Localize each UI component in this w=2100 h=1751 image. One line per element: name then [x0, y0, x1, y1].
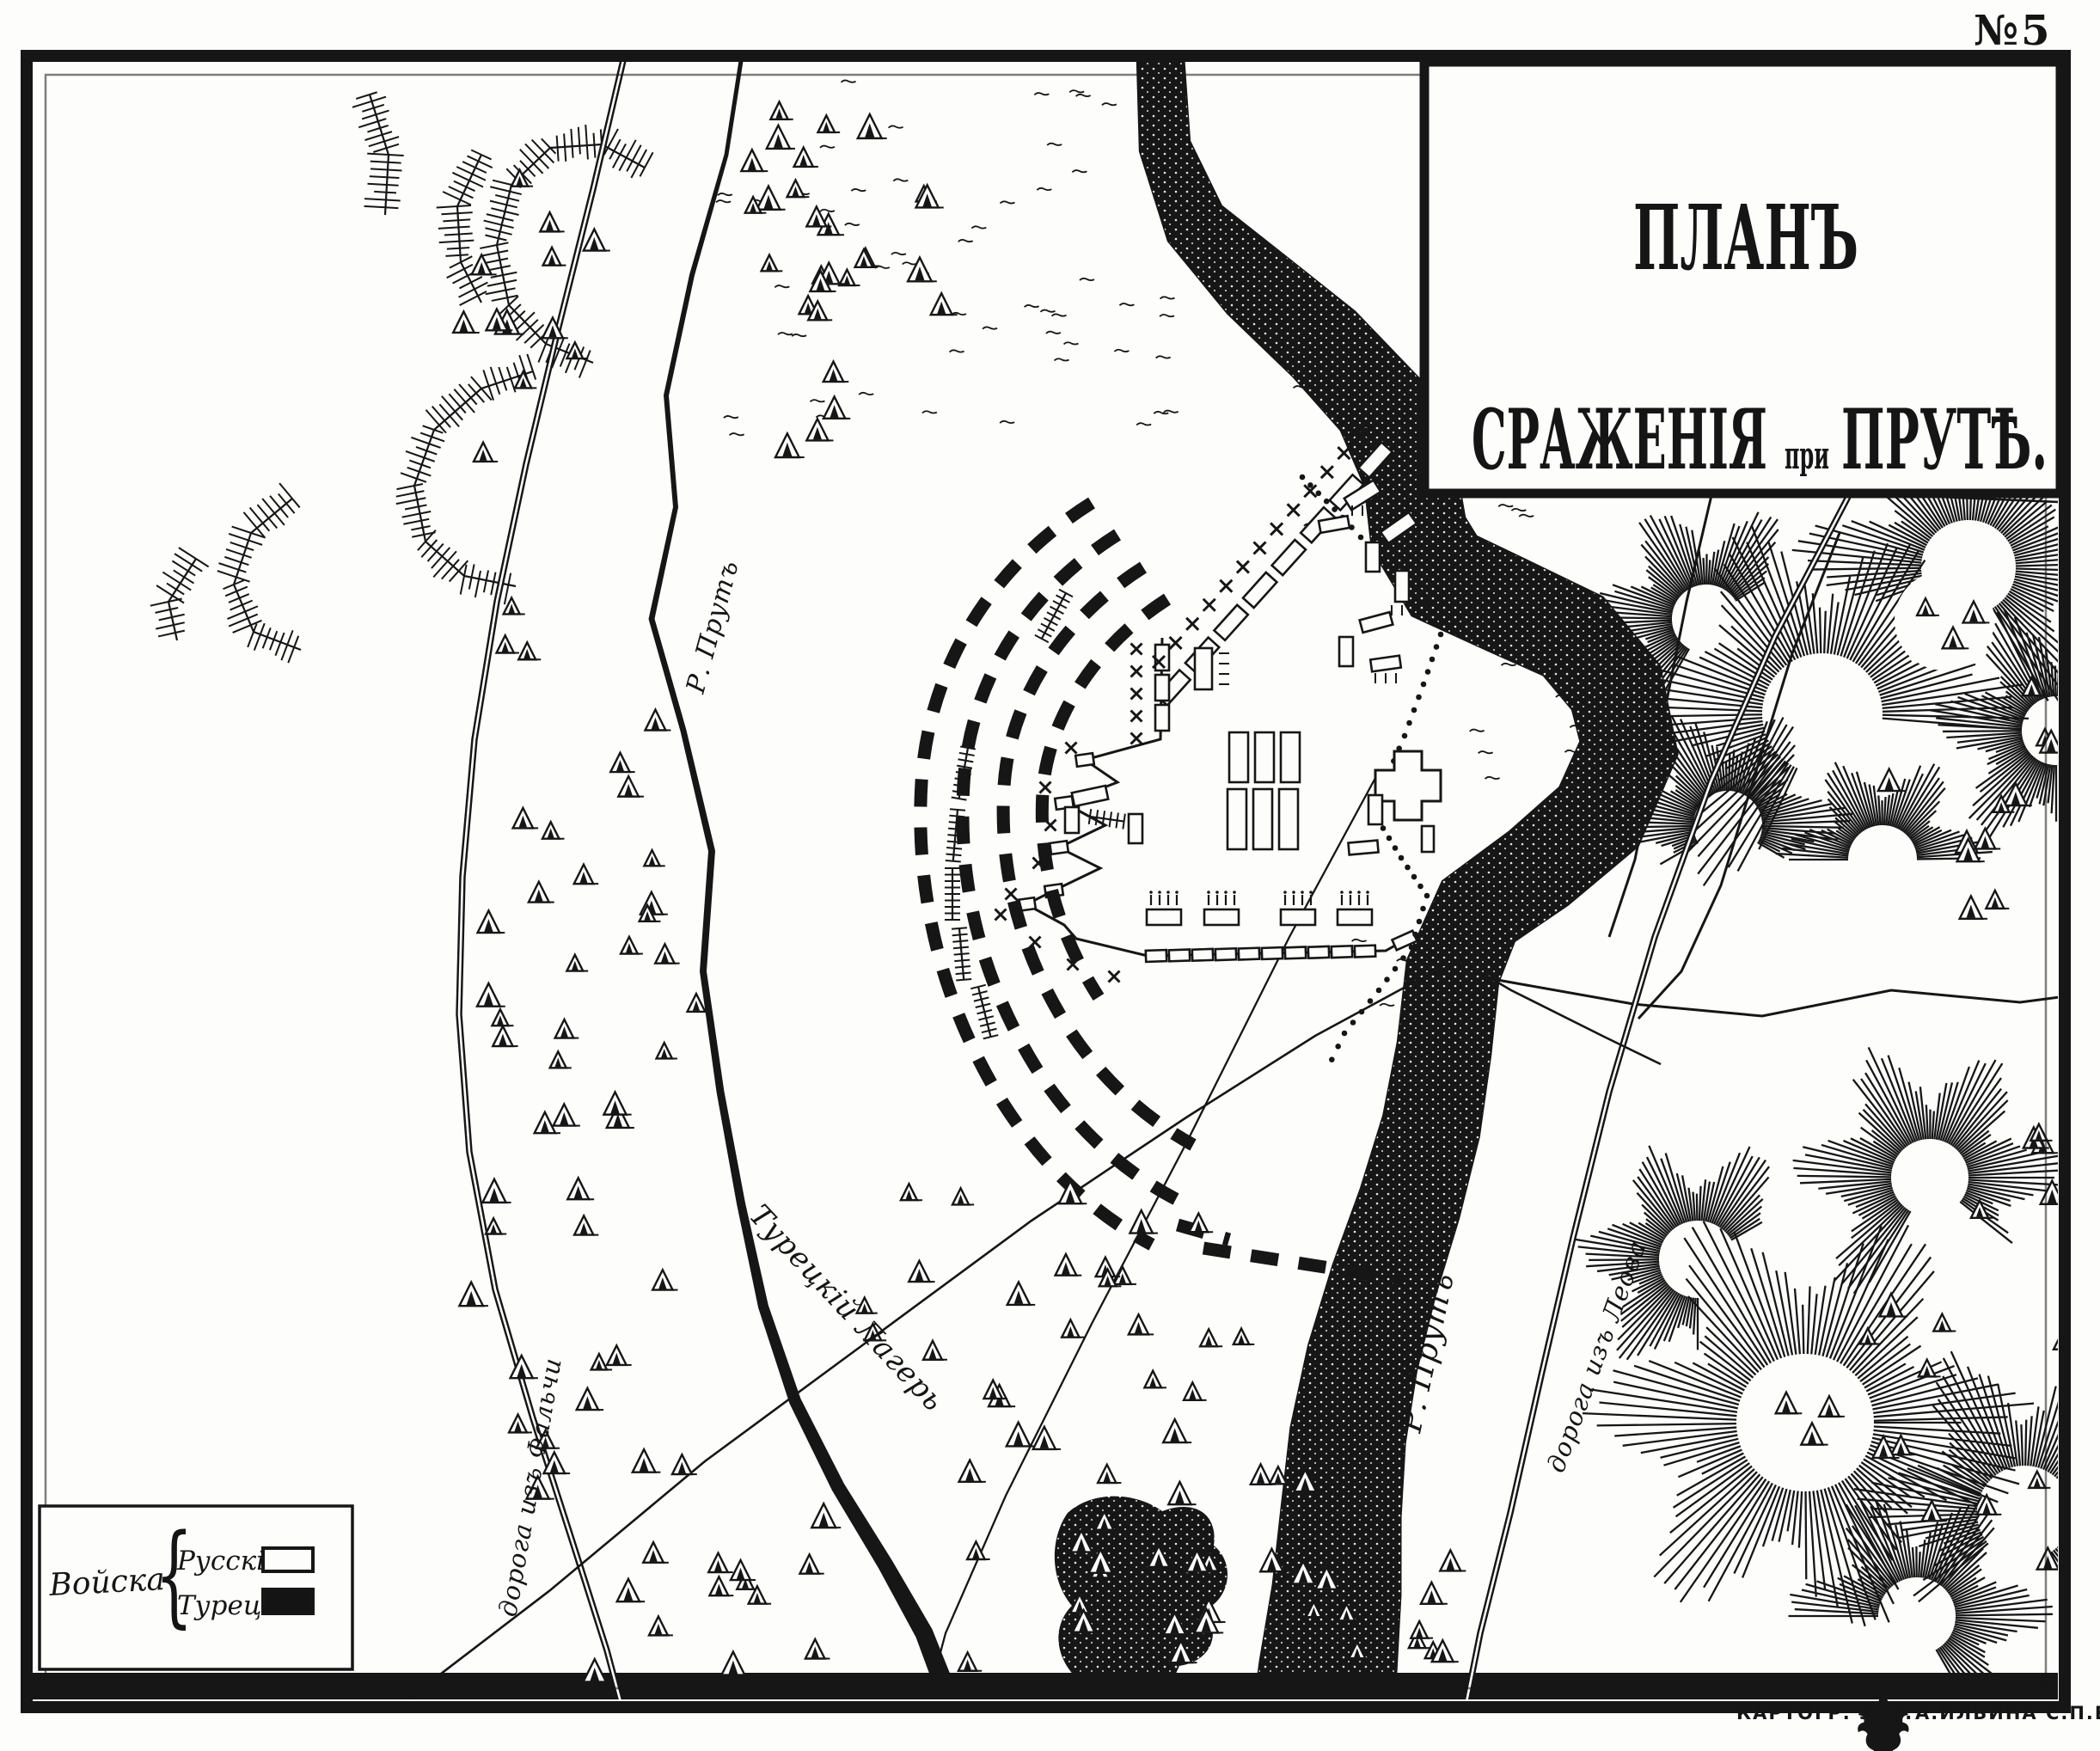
imprint-right: А.ИЛЬИНА С.П.Б. [1915, 1703, 2100, 1723]
legend-heading: Войска [47, 1562, 165, 1603]
legend: Войска { Русскія Турецк. [40, 1506, 352, 1669]
title-cartouche: ПЛАНЪ СРАЖЕНІЯ при ПРУТѢ. [1424, 62, 2060, 493]
battle-map-engraving: ПЛАНЪ СРАЖЕНІЯ при ПРУТѢ. №5 Войска { Ру… [0, 0, 2100, 1751]
map-title-line2-word1: СРАЖЕНІЯ [1472, 391, 1767, 488]
label-road-right: дорога изъ Леова [1541, 1236, 1652, 1476]
legend-swatch-turkish [263, 1589, 313, 1613]
cross-redoubt [1375, 751, 1441, 820]
map-title-line1: ПЛАНЪ [1633, 185, 1858, 291]
stream-left [649, 61, 955, 1693]
sheet-number: №5 [1974, 7, 2053, 55]
label-turkish-camp: Турецкій Лагерь [742, 1198, 951, 1418]
map-title-line2-word3: ПРУТѢ. [1841, 391, 2048, 488]
label-river-left: Р. Прутъ [681, 557, 745, 697]
legend-swatch-russian [263, 1548, 313, 1571]
marsh [1055, 1497, 1228, 1685]
imprint: КАРТОГР. ЗАВ. А.ИЛЬИНА С.П.Б. [1736, 1695, 2100, 1751]
map-sheet: ПЛАНЪ СРАЖЕНІЯ при ПРУТѢ. №5 Войска { Ру… [0, 0, 2100, 1751]
map-title-line2-word2: при [1785, 434, 1829, 478]
turkish-lines [921, 503, 1401, 1279]
